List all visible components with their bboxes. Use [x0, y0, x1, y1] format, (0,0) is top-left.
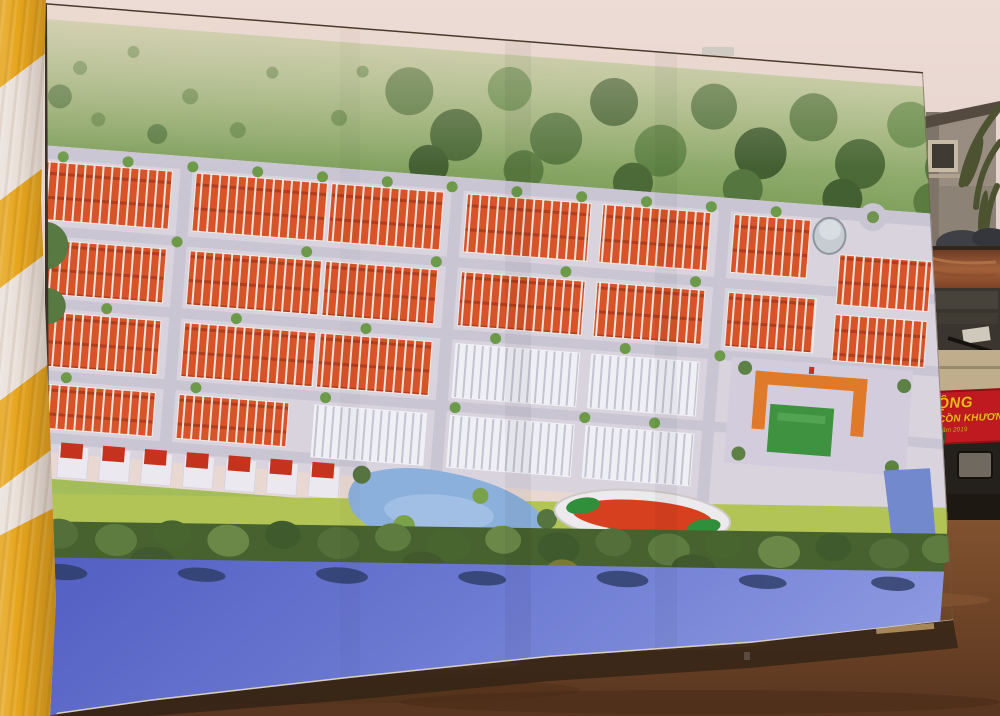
school-flag: [809, 367, 815, 374]
school-lawn: [767, 404, 834, 457]
school-campus: [724, 357, 914, 477]
photo: ỘNG CỒN KHƯƠNG năm 2019: [0, 0, 1000, 716]
masterplan-render: [0, 0, 1000, 716]
banner-line-3: năm 2019: [938, 425, 1000, 436]
truck-roof-rust: [928, 250, 1000, 288]
banner-text: ỘNG CỒN KHƯƠNG năm 2019: [937, 393, 1000, 446]
billboard: [0, 0, 1000, 716]
distant-roof: [702, 47, 734, 56]
headlight: [958, 452, 992, 478]
